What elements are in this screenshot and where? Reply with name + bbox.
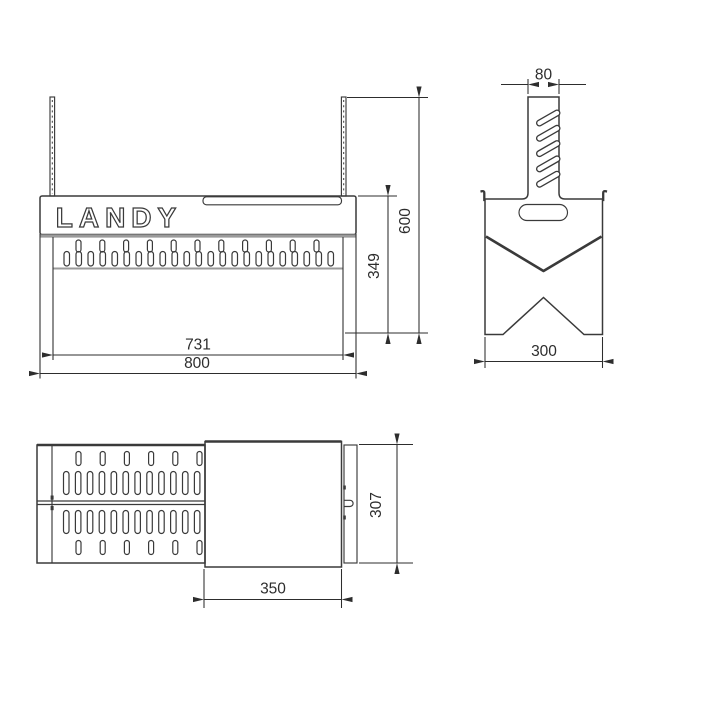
top-vent-slot <box>87 472 93 495</box>
front-vent-slot <box>184 252 190 267</box>
side-body-outline <box>485 193 603 335</box>
top-vent-slot <box>149 541 154 555</box>
top-vent-slot <box>124 541 129 555</box>
side-view: 80 300 <box>482 67 606 369</box>
top-vent-slot <box>171 472 177 495</box>
top-vent-slot <box>197 541 202 555</box>
top-vent-slot <box>124 452 129 466</box>
top-vent-slot <box>111 472 117 495</box>
front-vent-slot <box>328 252 334 267</box>
top-vent-slot <box>111 511 117 534</box>
dim-label-plate-width: 350 <box>260 581 286 598</box>
front-vent-slot <box>232 252 238 267</box>
brand-cutout-text: LANDY <box>56 202 182 233</box>
top-vent-slot <box>194 472 200 495</box>
side-v-bowl-edge <box>486 237 602 272</box>
front-back-panel-edge <box>203 197 342 205</box>
front-vent-slot <box>148 252 154 267</box>
front-vent-slot <box>88 252 94 267</box>
front-vent-slot <box>100 240 105 252</box>
front-vent-slot <box>64 252 70 267</box>
front-vent-slot <box>256 252 262 267</box>
drawing-svg: LANDY 731 800 349 600 <box>0 0 720 720</box>
front-vent-slot <box>124 240 129 252</box>
front-vent-slot <box>160 252 166 267</box>
top-vent-slot <box>135 472 141 495</box>
top-vent-slot <box>171 511 177 534</box>
technical-drawing-canvas: LANDY 731 800 349 600 <box>0 0 720 720</box>
top-solid-plate <box>205 442 342 568</box>
top-vent-slot <box>64 511 70 534</box>
front-vent-slot <box>316 252 322 267</box>
top-vent-slot <box>147 472 153 495</box>
top-vent-slot <box>76 541 81 555</box>
front-vent-slot <box>292 252 298 267</box>
top-vent-slot <box>100 452 105 466</box>
front-vent-slot <box>172 252 178 267</box>
top-vent-slot <box>99 472 105 495</box>
dim-label-overall-height: 600 <box>397 208 414 234</box>
top-right-rail-latch <box>344 500 353 506</box>
top-vent-slot <box>76 452 81 466</box>
top-vent-slot <box>173 541 178 555</box>
front-vent-slot <box>219 240 224 252</box>
top-vent-slot <box>183 511 189 534</box>
side-left-hook <box>482 191 485 200</box>
front-vent-slot <box>314 240 319 252</box>
top-vent-slots <box>64 452 203 555</box>
front-vent-slot <box>112 252 118 267</box>
front-vent-slot <box>244 252 250 267</box>
top-vent-slot <box>173 452 178 466</box>
front-vent-slot <box>268 252 274 267</box>
top-right-rail <box>344 445 357 563</box>
dim-label-depth: 307 <box>368 492 385 518</box>
top-vent-slot <box>75 472 81 495</box>
side-post-notches <box>540 113 558 184</box>
top-vent-slot <box>135 511 141 534</box>
front-vent-slot <box>76 240 81 252</box>
front-view: LANDY 731 800 349 600 <box>40 97 428 379</box>
top-vent-slot <box>194 511 200 534</box>
front-vent-slots <box>64 240 334 266</box>
front-vent-slot <box>124 252 130 267</box>
top-vent-slot <box>75 511 81 534</box>
side-right-hook <box>603 191 606 200</box>
top-right-rail-tab <box>343 486 346 490</box>
top-left-rail-tab <box>51 496 54 500</box>
dim-label-overall-width: 800 <box>184 355 210 372</box>
top-vent-slot <box>64 472 70 495</box>
top-vent-slot <box>149 452 154 466</box>
dim-label-side-width: 300 <box>531 343 557 360</box>
top-right-rail-tab <box>343 516 346 520</box>
side-handle-slot <box>519 205 568 221</box>
front-vent-slot <box>290 240 295 252</box>
front-vent-slot <box>195 240 200 252</box>
front-vent-slot <box>147 240 152 252</box>
front-vent-slot <box>243 240 248 252</box>
front-vent-slot <box>208 252 214 267</box>
front-vent-slot <box>100 252 106 267</box>
front-vent-slot <box>76 252 82 267</box>
top-vent-slot <box>87 511 93 534</box>
top-vent-slot <box>159 511 165 534</box>
front-vent-slot <box>220 252 226 267</box>
top-left-rail-tab <box>51 506 54 510</box>
top-vent-slot <box>197 452 202 466</box>
top-vent-slot <box>183 472 189 495</box>
dim-label-inner-width: 731 <box>185 337 211 354</box>
front-vent-slot <box>196 252 202 267</box>
front-vent-slot <box>136 252 142 267</box>
front-vent-slot <box>266 240 271 252</box>
front-vent-slot <box>304 252 310 267</box>
dim-label-post-width: 80 <box>535 67 553 84</box>
top-vent-slot <box>159 472 165 495</box>
front-vent-slot <box>171 240 176 252</box>
front-vent-slot <box>280 252 286 267</box>
top-view: 350 307 <box>37 442 413 609</box>
dim-label-body-height: 349 <box>366 253 383 279</box>
top-vent-slot <box>99 511 105 534</box>
top-vent-slot <box>147 511 153 534</box>
top-vent-slot <box>123 511 129 534</box>
top-vent-slot <box>100 541 105 555</box>
top-vent-slot <box>123 472 129 495</box>
